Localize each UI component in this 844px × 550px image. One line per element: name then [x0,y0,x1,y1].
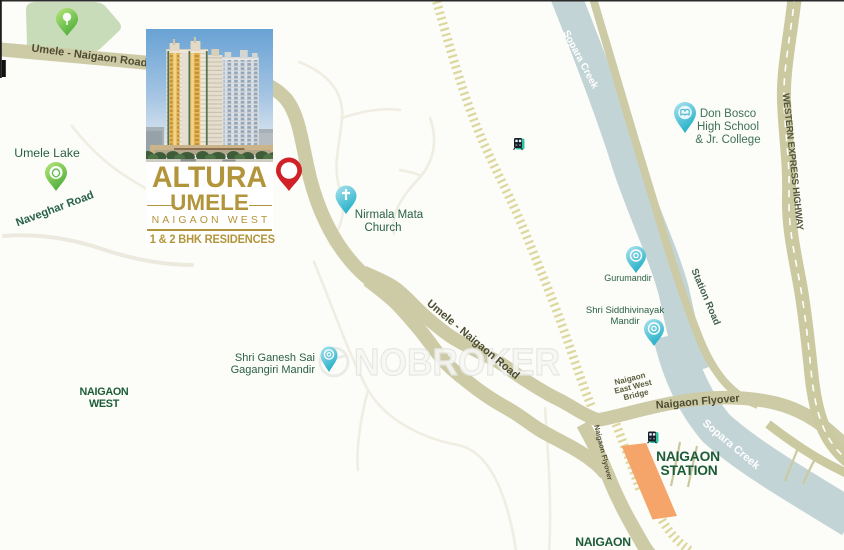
svg-text:Umele Lake: Umele Lake [14,146,80,160]
svg-text:& Jr. College: & Jr. College [695,134,760,146]
svg-text:Gurumandir: Gurumandir [604,273,652,283]
svg-text:Don Bosco: Don Bosco [700,108,756,120]
svg-text:NAIGAON: NAIGAON [80,386,129,398]
svg-text:NAIGAON: NAIGAON [656,449,720,464]
svg-text:WEST: WEST [89,398,120,410]
svg-text:NAIGAON: NAIGAON [575,535,630,549]
svg-text:High School: High School [697,121,759,133]
svg-text:Shri Siddhivinayak: Shri Siddhivinayak [586,305,664,316]
svg-text:Nirmala Mata: Nirmala Mata [355,209,424,221]
svg-text:NOBROKER: NOBROKER [354,342,560,384]
svg-text:Mandir: Mandir [610,316,639,327]
svg-text:Shri Ganesh Sai: Shri Ganesh Sai [235,352,315,364]
svg-text:Church: Church [364,222,401,234]
svg-text:Gagangiri Mandir: Gagangiri Mandir [231,364,316,376]
svg-text:STATION: STATION [660,463,717,478]
